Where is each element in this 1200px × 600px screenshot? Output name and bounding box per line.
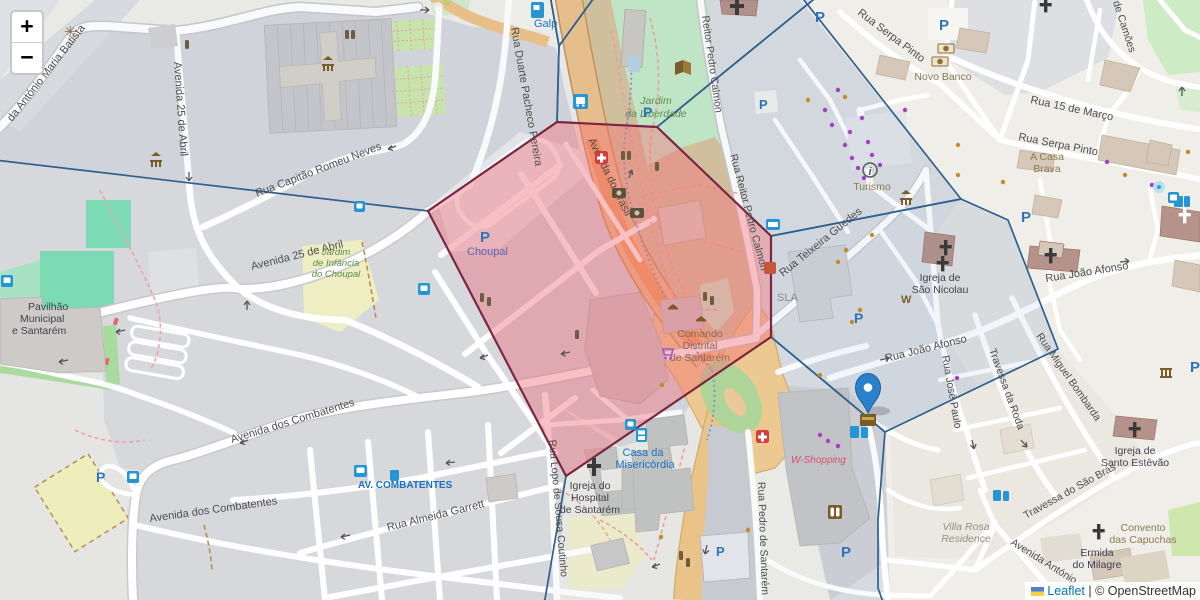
svg-text:de Santarém: de Santarém: [560, 504, 620, 516]
svg-text:Misericórdia: Misericórdia: [615, 459, 675, 471]
svg-text:Comando: Comando: [677, 328, 723, 340]
svg-text:Santo Estêvão: Santo Estêvão: [1101, 457, 1169, 469]
svg-text:Turismo: Turismo: [853, 181, 891, 193]
svg-text:Hospital: Hospital: [571, 492, 609, 504]
svg-text:Convento: Convento: [1121, 522, 1166, 534]
svg-text:P: P: [939, 17, 949, 34]
svg-text:Galp: Galp: [534, 18, 557, 30]
svg-text:Jardim: Jardim: [321, 247, 351, 258]
svg-text:P: P: [1021, 209, 1031, 226]
svg-text:P: P: [1190, 359, 1200, 376]
svg-text:W-Shopping: W-Shopping: [791, 455, 846, 466]
svg-text:Ermida: Ermida: [1080, 547, 1113, 559]
svg-text:✳: ✳: [64, 24, 77, 41]
svg-text:Choupal: Choupal: [467, 246, 508, 258]
svg-text:da Liberdade: da Liberdade: [625, 108, 686, 120]
svg-text:P: P: [854, 310, 863, 326]
svg-text:W: W: [901, 294, 912, 306]
svg-text:Igreja de: Igreja de: [1115, 445, 1156, 457]
svg-text:P: P: [643, 104, 652, 120]
svg-text:das Capuchas: das Capuchas: [1109, 534, 1176, 546]
svg-text:Igreja de: Igreja de: [920, 272, 961, 284]
svg-text:do Choupal: do Choupal: [312, 269, 361, 280]
svg-text:Municipal: Municipal: [20, 313, 64, 325]
svg-text:P: P: [480, 229, 490, 246]
svg-text:de Santarém: de Santarém: [670, 352, 730, 364]
svg-text:P: P: [96, 469, 105, 485]
svg-text:P: P: [759, 97, 768, 112]
svg-text:A Casa: A Casa: [1030, 151, 1064, 163]
svg-text:Pavilhão: Pavilhão: [28, 301, 68, 313]
svg-text:Villa Rosa: Villa Rosa: [942, 521, 989, 533]
svg-text:e Santarém: e Santarém: [12, 325, 67, 337]
svg-text:P: P: [815, 9, 825, 26]
svg-text:São Nicolau: São Nicolau: [912, 284, 969, 296]
svg-text:SLA: SLA: [777, 292, 798, 304]
svg-text:AV. COMBATENTES: AV. COMBATENTES: [358, 480, 453, 491]
svg-text:Igreja do: Igreja do: [570, 480, 611, 492]
svg-text:Casa da: Casa da: [623, 447, 665, 459]
svg-text:do Milagre: do Milagre: [1072, 559, 1121, 571]
svg-text:de Infância: de Infância: [313, 258, 359, 269]
svg-text:Distrital: Distrital: [682, 340, 717, 352]
svg-text:P: P: [841, 544, 851, 561]
svg-text:P: P: [716, 544, 725, 559]
svg-text:Brava: Brava: [1033, 163, 1061, 175]
svg-text:Residence: Residence: [941, 533, 991, 545]
svg-text:Novo Banco: Novo Banco: [914, 71, 971, 83]
